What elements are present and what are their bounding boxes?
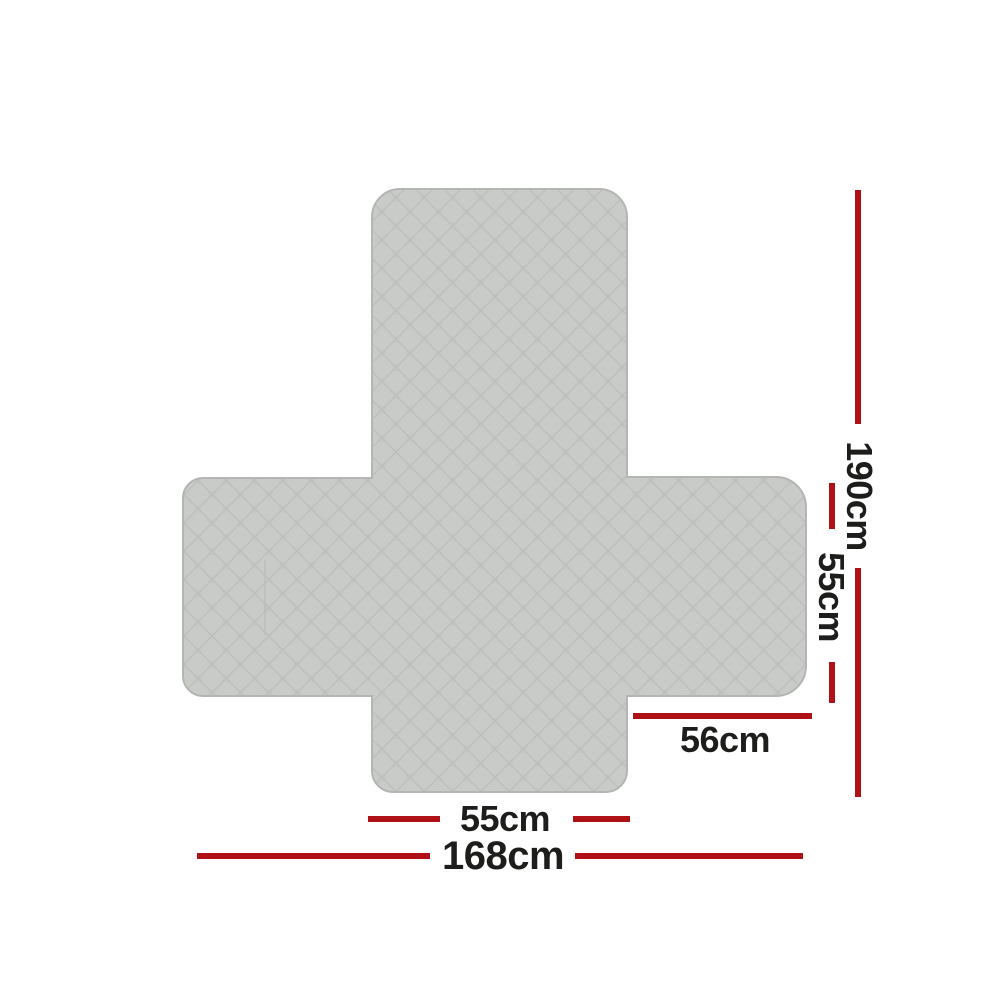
dim-label-seat-width: 55cm [460, 801, 550, 837]
dim-label-arm-width: 56cm [680, 722, 770, 758]
dim-line-seat-width-left [368, 816, 440, 822]
dim-line-arm-depth-top [829, 483, 835, 529]
dim-line-arm-depth-bottom [829, 662, 835, 703]
dim-line-seat-width-right [573, 816, 630, 822]
dim-line-total-height-top [855, 190, 861, 424]
dim-label-total-width: 168cm [442, 836, 564, 876]
dim-label-arm-depth: 55cm [813, 552, 849, 642]
dim-line-total-height-bottom [855, 568, 861, 797]
dim-line-total-width-left [197, 853, 430, 859]
dim-label-total-height: 190cm [841, 441, 877, 551]
product-dimension-diagram: 190cm 55cm 56cm 55cm 168cm [0, 0, 1000, 1000]
dim-line-total-width-right [575, 853, 803, 859]
quilted-cover-outline [183, 189, 806, 792]
